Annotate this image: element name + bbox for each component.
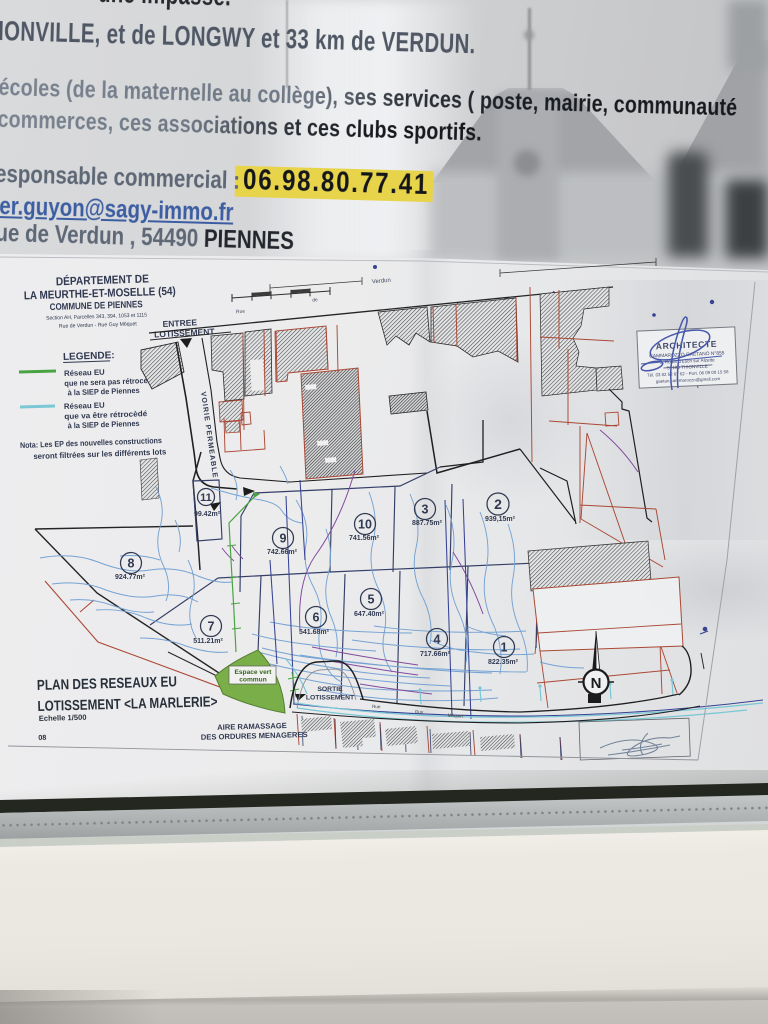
svg-text:08: 08	[38, 733, 46, 742]
svg-text:7: 7	[208, 620, 215, 634]
svg-text:VOIRIE PERMEABLE: VOIRIE PERMEABLE	[199, 391, 220, 479]
svg-text:Espace vert: Espace vert	[234, 669, 272, 676]
svg-text:LOTISSEMENT: LOTISSEMENT	[306, 695, 355, 702]
svg-text:1: 1	[501, 641, 508, 655]
svg-text:de: de	[312, 297, 318, 303]
svg-text:PLAN DES RESEAUX EU: PLAN DES RESEAUX EU	[37, 674, 177, 694]
svg-text:Réseau EU: Réseau EU	[64, 401, 105, 411]
svg-text:11: 11	[200, 492, 212, 504]
svg-text:Verdun: Verdun	[372, 278, 391, 286]
svg-text:541.68m²: 541.68m²	[299, 629, 330, 636]
svg-text:8: 8	[128, 557, 135, 571]
svg-text:647.40m²: 647.40m²	[354, 611, 385, 618]
svg-text:à la SIEP de Piennes: à la SIEP de Piennes	[68, 386, 141, 398]
svg-text:924.77m²: 924.77m²	[115, 574, 146, 581]
svg-text:717.66m²: 717.66m²	[420, 651, 451, 658]
svg-text:Réseau EU: Réseau EU	[64, 368, 105, 378]
svg-text:SORTIE: SORTIE	[317, 686, 343, 693]
svg-text:741.56m²: 741.56m²	[349, 535, 380, 542]
svg-text:887.75m²: 887.75m²	[412, 520, 443, 527]
svg-text:10: 10	[358, 518, 372, 532]
svg-text:939,15m²: 939,15m²	[485, 516, 516, 523]
svg-text:Echelle 1/500: Echelle 1/500	[39, 713, 87, 723]
svg-text:742.66m²: 742.66m²	[267, 549, 298, 556]
svg-text:DES ORDURES MENAGERES: DES ORDURES MENAGERES	[201, 730, 308, 742]
svg-text:Rue de Verdun - Rue Guy Môquet: Rue de Verdun - Rue Guy Môquet	[59, 321, 138, 329]
svg-text:9: 9	[280, 532, 287, 546]
svg-text:99.42m²: 99.42m²	[194, 511, 221, 518]
svg-text:Guy: Guy	[415, 709, 424, 714]
svg-text:COMMUNE DE PIENNES: COMMUNE DE PIENNES	[50, 299, 143, 313]
svg-text:2: 2	[494, 496, 502, 512]
svg-text:LOTISSEMENT <LA MARLERIE>: LOTISSEMENT <LA MARLERIE>	[37, 694, 217, 715]
svg-text:N: N	[591, 675, 602, 692]
svg-text:à la SIEP de Piennes: à la SIEP de Piennes	[67, 419, 140, 431]
svg-text:6: 6	[313, 611, 320, 625]
svg-text:commun: commun	[239, 677, 266, 684]
svg-text:511.21m²: 511.21m²	[193, 638, 223, 645]
svg-text:Môquet: Môquet	[448, 713, 464, 719]
svg-text:4: 4	[434, 633, 441, 647]
svg-text:LOTISSEMENT: LOTISSEMENT	[154, 326, 216, 339]
svg-text:5: 5	[368, 593, 375, 607]
svg-text:Rue: Rue	[236, 309, 246, 316]
svg-text:822.35m²: 822.35m²	[488, 659, 519, 666]
svg-text:Rue: Rue	[372, 704, 381, 709]
svg-text:Section AH, Parcelles 343, 394: Section AH, Parcelles 343, 394, 1053 et …	[46, 313, 147, 322]
svg-text:3: 3	[422, 503, 429, 517]
